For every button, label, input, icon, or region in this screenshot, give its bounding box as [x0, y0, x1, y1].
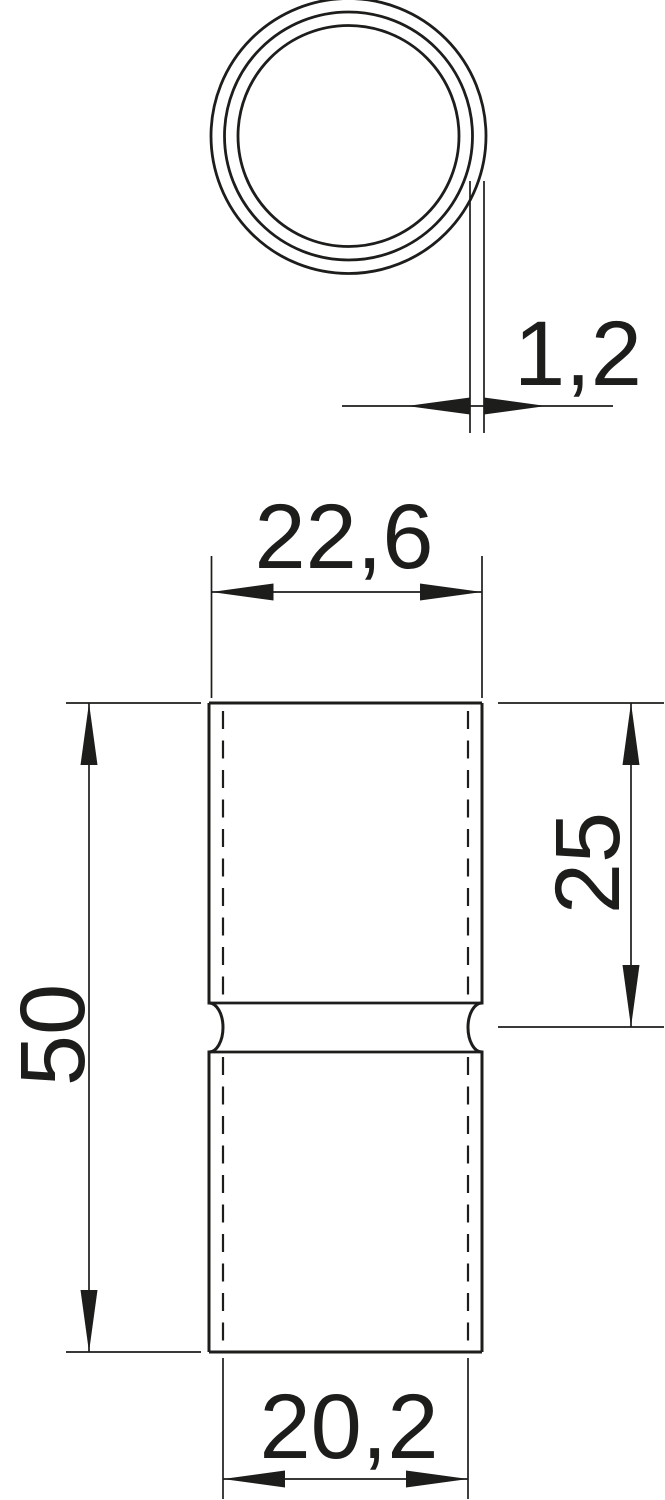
arrowhead-up-icon	[623, 703, 640, 765]
dimension-outer-width: 22,6	[212, 486, 483, 698]
drawing-canvas: 1,2 22,6 50	[0, 0, 665, 1500]
inner-diameter-circle	[238, 26, 459, 247]
dimension-wall-thickness: 1,2	[342, 181, 642, 433]
technical-drawing: 1,2 22,6 50	[0, 0, 665, 1500]
body-right-edge	[468, 703, 482, 1352]
arrowhead-left-icon	[407, 398, 470, 415]
dimension-label-wall-thickness: 1,2	[514, 303, 642, 405]
arrowhead-down-icon	[81, 1290, 98, 1352]
dimension-label-upper-half-length: 25	[537, 812, 639, 914]
top-view	[211, 0, 486, 274]
dimension-label-inner-width: 20,2	[259, 1376, 438, 1478]
dimension-label-outer-width: 22,6	[254, 486, 433, 588]
outer-diameter-circle	[211, 0, 486, 274]
dimension-inner-width: 20,2	[223, 1358, 468, 1499]
middle-diameter-circle	[225, 12, 473, 260]
dimension-total-length: 50	[2, 703, 201, 1352]
dimension-label-total-length: 50	[2, 984, 104, 1086]
body-left-edge	[209, 703, 223, 1352]
dimension-upper-half-length: 25	[498, 703, 664, 1027]
arrowhead-up-icon	[81, 703, 98, 765]
arrowhead-down-icon	[623, 965, 640, 1027]
front-view	[209, 703, 482, 1352]
